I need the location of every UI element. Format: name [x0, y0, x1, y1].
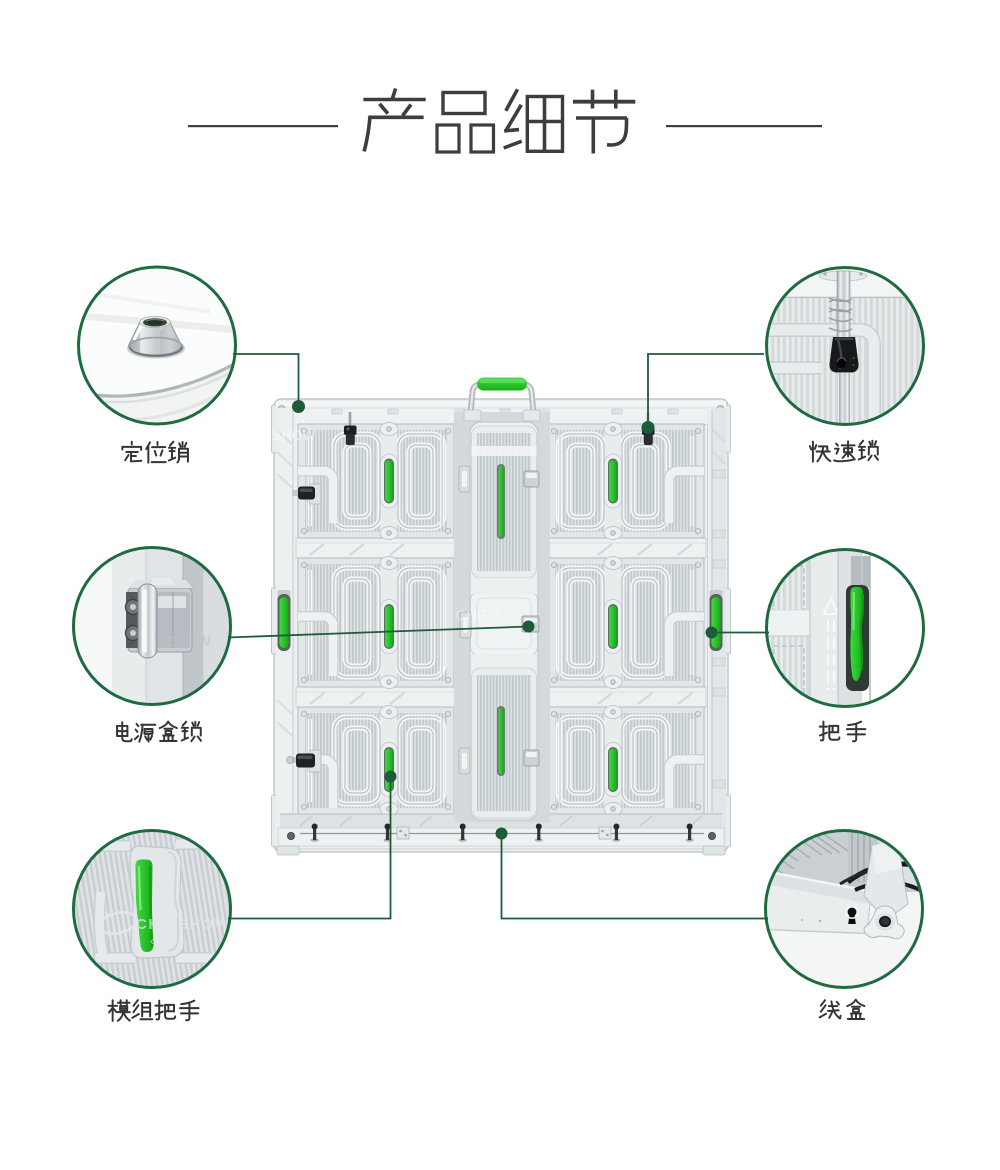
svg-text:‹›‹›: ‹›‹› [150, 934, 182, 948]
svg-text:CHIPS: CHIPS [455, 607, 501, 624]
svg-text:CHIPSHOW: CHIPSHOW [136, 916, 231, 933]
svg-text:SHOW: SHOW [272, 427, 316, 443]
svg-text:PSHOW: PSHOW [158, 633, 212, 649]
